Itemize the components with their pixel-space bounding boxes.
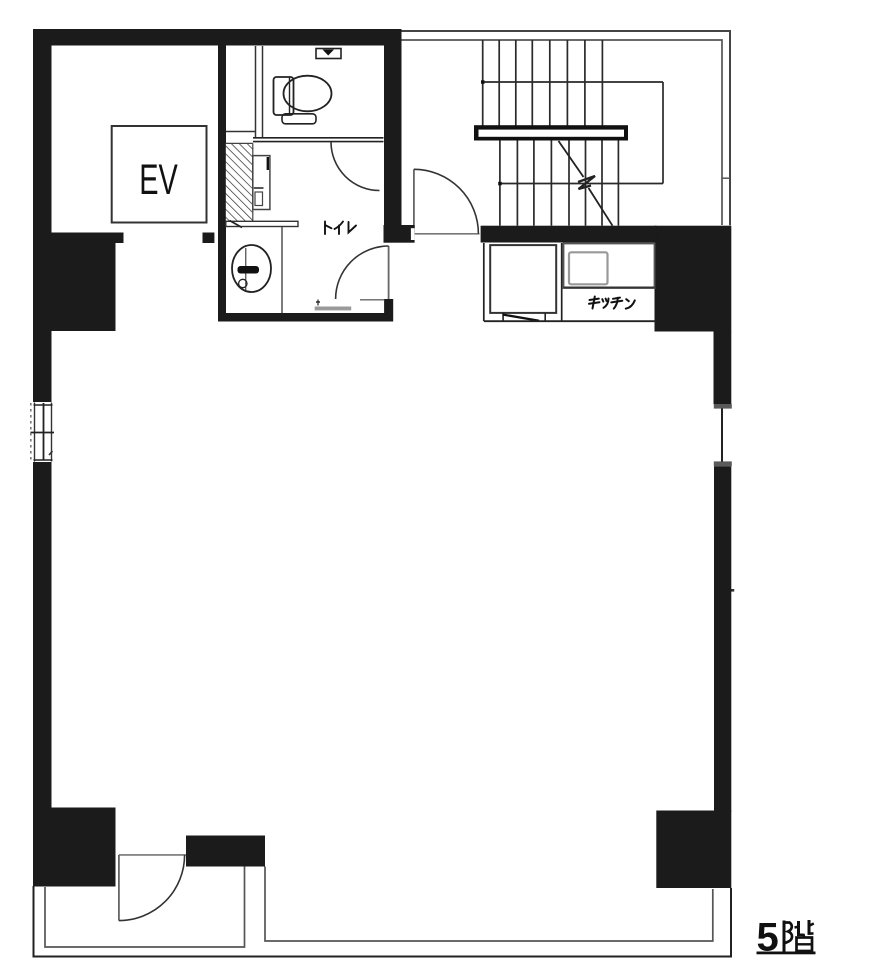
svg-text:EV: EV (139, 155, 178, 203)
